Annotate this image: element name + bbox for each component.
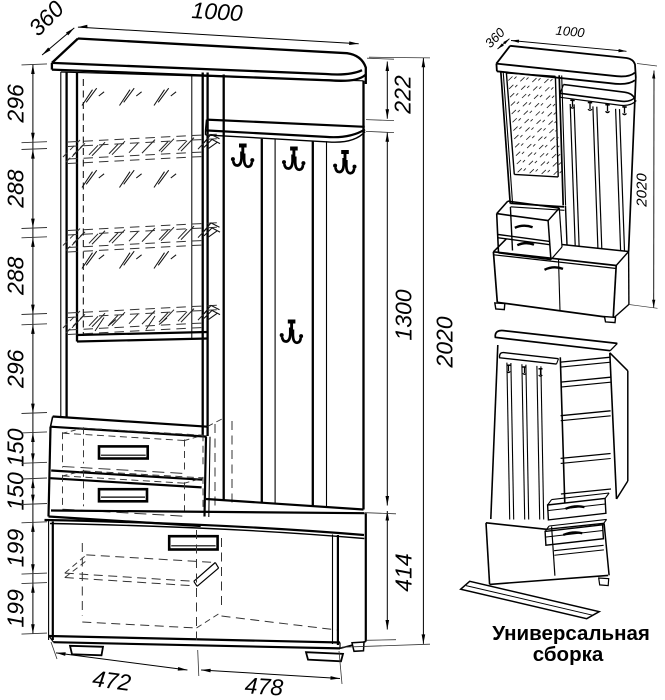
svg-text:199: 199 [3,589,29,628]
svg-text:222: 222 [390,75,416,115]
svg-text:1000: 1000 [555,23,586,41]
svg-text:2020: 2020 [432,316,458,368]
svg-text:478: 478 [244,672,284,700]
svg-text:сборка: сборка [533,643,604,666]
svg-text:414: 414 [391,553,417,591]
svg-text:199: 199 [3,529,29,568]
svg-text:472: 472 [91,665,133,696]
svg-text:150: 150 [3,428,29,467]
svg-text:288: 288 [3,169,29,209]
svg-text:1000: 1000 [191,0,244,26]
svg-text:288: 288 [3,256,29,296]
svg-text:2020: 2020 [633,173,650,208]
svg-text:296: 296 [3,349,29,389]
svg-text:296: 296 [3,84,29,124]
svg-text:Универсальная: Универсальная [492,622,650,645]
svg-text:1300: 1300 [391,289,417,340]
